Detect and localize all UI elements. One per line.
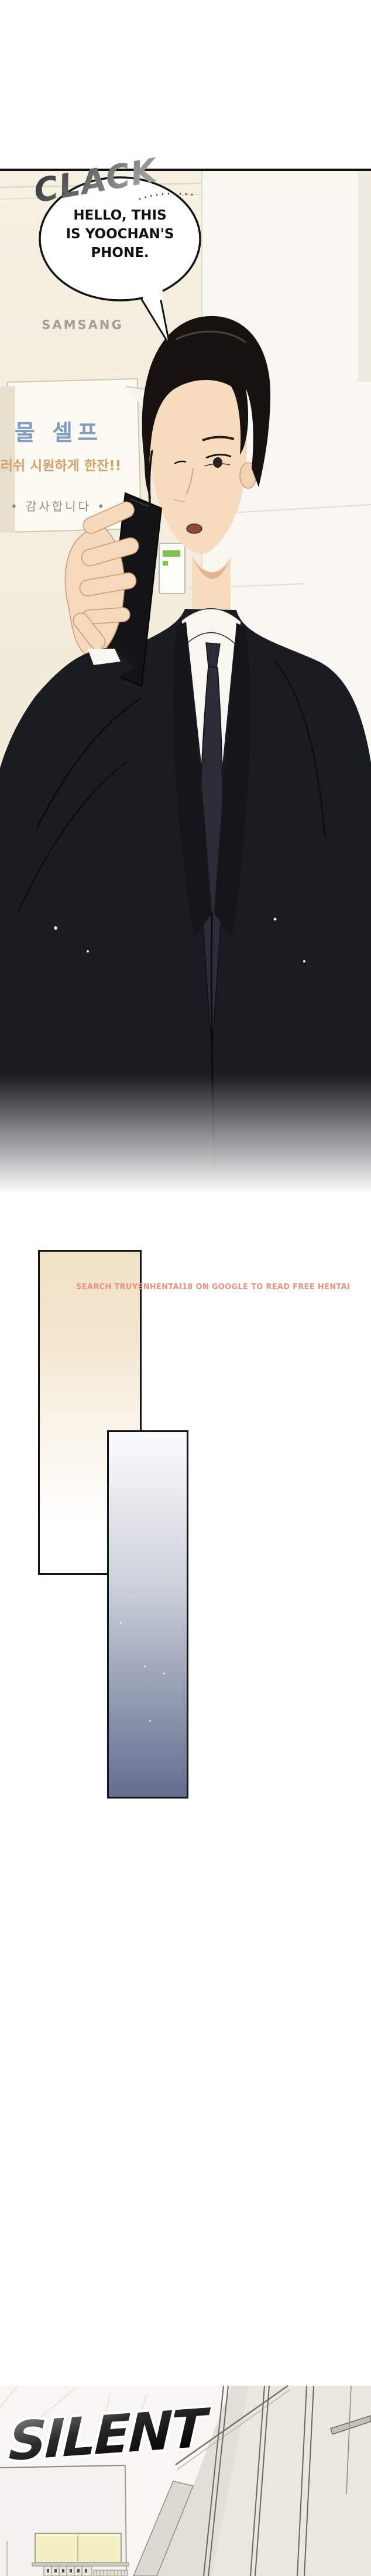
green-dot [163, 561, 168, 566]
mouth-open [187, 524, 202, 533]
cabinet-shelf [32, 2563, 129, 2566]
lockers [44, 2566, 92, 2576]
speech-line-1: HELLO, THIS [73, 208, 166, 223]
webtoon-page: { "panel1": { "sfx": "CLACK", "bubble": … [0, 0, 371, 2576]
vent-grille [94, 2570, 128, 2576]
speck-dot [163, 1673, 165, 1674]
speck-dot [149, 1720, 151, 1722]
transition-panel-blue [107, 1430, 188, 1799]
speck-dot [120, 1622, 122, 1623]
sign-promo-korean: 러쉬 시원하게 한잔!! [1, 458, 121, 474]
speck-dot [130, 1596, 132, 1597]
eye [213, 457, 222, 468]
sign-title-korean: 물 셀프 [15, 420, 102, 446]
panel-silent-office: SILENT [0, 2359, 371, 2576]
sign-thanks-korean: • 감사합니다 • [11, 499, 107, 513]
machine-brand-text: SAMSANG [42, 318, 123, 332]
green-indicator-sign [159, 543, 185, 594]
wall-edge-band [358, 171, 371, 382]
green-bar [163, 550, 180, 557]
panel-phone-call: SAMSANG 물 셀프 러쉬 시원하게 한잔!! • 감사합니다 • [0, 0, 371, 1194]
watermark-text: SEARCH TRUYENHENTAI18 ON GOOGLE TO READ … [76, 1283, 350, 1292]
speech-line-3: PHONE. [91, 245, 149, 261]
speech-line-2: IS YOOCHAN'S [66, 227, 174, 242]
speck-dot [144, 1666, 146, 1667]
yellow-cabinet [35, 2533, 121, 2563]
